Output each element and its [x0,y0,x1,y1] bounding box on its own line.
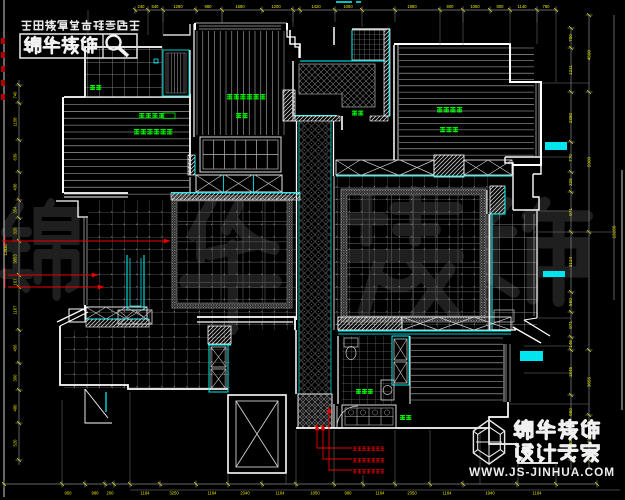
svg-text:971: 971 [568,321,573,329]
svg-text:200: 200 [107,491,115,496]
svg-text:1164: 1164 [275,491,285,496]
svg-text:1420: 1420 [311,4,321,9]
svg-text:2340: 2340 [240,491,250,496]
svg-text:354: 354 [13,206,18,214]
svg-text:167: 167 [13,278,18,286]
svg-text:456: 456 [13,344,18,352]
svg-text:3853: 3853 [13,254,18,264]
svg-text:1880: 1880 [407,4,417,9]
svg-text:540: 540 [152,4,160,9]
svg-text:950: 950 [568,408,573,416]
svg-text:520: 520 [13,439,18,447]
svg-text:1050: 1050 [343,4,353,9]
svg-text:1680: 1680 [235,4,245,9]
svg-text:146: 146 [568,340,573,348]
svg-text:639: 639 [13,153,18,161]
svg-text:480: 480 [13,404,18,412]
svg-text:4590: 4590 [587,49,592,60]
svg-text:760: 760 [543,4,551,9]
svg-text:1050: 1050 [310,491,320,496]
svg-text:1280: 1280 [173,4,183,9]
svg-text:950: 950 [65,491,73,496]
svg-text:1940: 1940 [485,491,495,496]
svg-text:550: 550 [568,298,573,306]
svg-text:436: 436 [13,183,18,191]
svg-text:980: 980 [92,491,100,496]
svg-text:700: 700 [568,34,573,42]
svg-text:980: 980 [205,4,213,9]
svg-text:300: 300 [13,374,18,382]
svg-text:3250: 3250 [169,491,179,496]
svg-text:1211: 1211 [568,65,573,75]
svg-text:770: 770 [568,154,573,162]
svg-text:971: 971 [568,208,573,216]
svg-text:1200: 1200 [271,4,281,9]
svg-text:1845: 1845 [568,366,573,377]
svg-text:1167: 1167 [13,305,18,315]
svg-text:3655: 3655 [587,376,592,387]
svg-text:980: 980 [345,491,353,496]
svg-text:1164: 1164 [442,491,452,496]
svg-text:1164: 1164 [207,491,217,496]
svg-text:1164: 1164 [375,491,385,496]
svg-text:WWW.JS-JINHUA.COM: WWW.JS-JINHUA.COM [469,465,615,479]
svg-text:1060: 1060 [470,4,480,9]
svg-text:900: 900 [447,4,455,9]
svg-text:3124: 3124 [568,256,573,267]
svg-text:1164: 1164 [532,491,542,496]
svg-text:1164: 1164 [140,491,150,496]
svg-text:13930: 13930 [3,244,8,256]
svg-text:2380: 2380 [568,112,573,123]
svg-text:325: 325 [568,178,573,186]
svg-text:320: 320 [13,227,18,235]
svg-text:1158: 1158 [13,117,18,127]
svg-text:800: 800 [497,4,505,9]
svg-text:2350: 2350 [407,491,417,496]
svg-text:5900: 5900 [587,156,592,167]
svg-text:240: 240 [138,4,146,9]
svg-text:1140: 1140 [517,4,527,9]
svg-text:740: 740 [13,91,18,99]
svg-text:13265: 13265 [612,225,617,238]
